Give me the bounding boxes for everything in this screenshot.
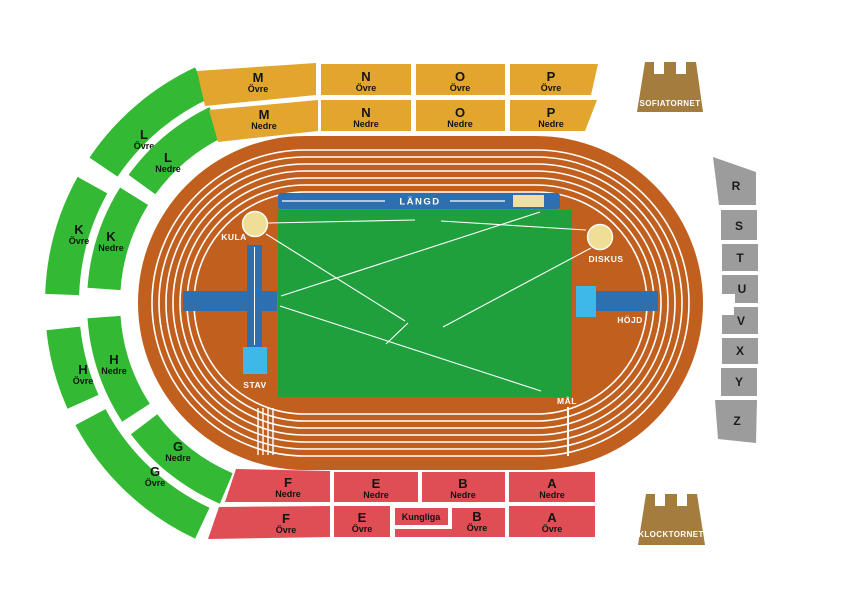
langd-label: LÄNGD xyxy=(399,197,440,208)
section-label-p-ovre: P xyxy=(547,69,556,84)
section-tier-o-nedre: Nedre xyxy=(447,119,473,129)
section-label-e-ovre: E xyxy=(358,510,367,525)
section-tier-h-ovre: Övre xyxy=(73,376,94,386)
section-label-m-nedre: M xyxy=(259,107,270,122)
section-tier-e-nedre: Nedre xyxy=(363,490,389,500)
section-label-g-nedre: G xyxy=(173,439,183,454)
section-label-t: T xyxy=(736,251,744,265)
section-label-f-nedre: F xyxy=(284,475,292,490)
section-tier-l-nedre: Nedre xyxy=(155,164,181,174)
stadium-map-svg: LÄNGD KULA DISKUS HÖJD STAV MÅL LÖvreLNe… xyxy=(0,0,867,592)
section-tier-a-ovre: Övre xyxy=(542,524,563,534)
section-tier-b-ovre: Övre xyxy=(467,523,488,533)
section-tier-n-nedre: Nedre xyxy=(353,119,379,129)
section-tier-g-ovre: Övre xyxy=(145,478,166,488)
section-label-r: R xyxy=(732,179,741,193)
section-tier-m-ovre: Övre xyxy=(248,84,269,94)
section-label-f-ovre: F xyxy=(282,511,290,526)
section-label-z: Z xyxy=(733,414,740,428)
section-label-l-ovre: L xyxy=(140,127,148,142)
klocktornet-label: KLOCKTORNET xyxy=(638,530,704,539)
section-label-p-nedre: P xyxy=(547,105,556,120)
stadium-seating-map: LÄNGD KULA DISKUS HÖJD STAV MÅL LÖvreLNe… xyxy=(0,0,867,592)
section-label-n-nedre: N xyxy=(361,105,370,120)
section-tier-f-ovre: Övre xyxy=(276,525,297,535)
section-label-a-ovre: A xyxy=(547,510,557,525)
mal-label: MÅL xyxy=(557,396,577,406)
high-jump-mat xyxy=(576,286,596,317)
section-tier-o-ovre: Övre xyxy=(450,83,471,93)
section-tier-k-nedre: Nedre xyxy=(98,243,124,253)
section-tier-k-ovre: Övre xyxy=(69,236,90,246)
section-label-v: V xyxy=(737,314,745,328)
infield xyxy=(278,210,572,397)
section-label-k-nedre: K xyxy=(106,229,116,244)
section-tier-e-ovre: Övre xyxy=(352,524,373,534)
section-label-h-ovre: H xyxy=(78,362,87,377)
section-label-y: Y xyxy=(735,375,743,389)
section-label-s: S xyxy=(735,219,743,233)
section-f-ovre[interactable] xyxy=(208,506,330,539)
long-jump-sand-pit xyxy=(513,195,544,207)
section-tier-n-ovre: Övre xyxy=(356,83,377,93)
javelin-runway xyxy=(183,291,277,311)
high-jump-runway xyxy=(596,291,658,311)
section-label-e-nedre: E xyxy=(372,476,381,491)
kula-label: KULA xyxy=(221,232,247,242)
section-tier-b-nedre: Nedre xyxy=(450,490,476,500)
section-tier-f-nedre: Nedre xyxy=(275,489,301,499)
section-tier-p-ovre: Övre xyxy=(541,83,562,93)
section-label-o-nedre: O xyxy=(455,105,465,120)
stav-label: STAV xyxy=(243,380,266,390)
section-label-n-ovre: N xyxy=(361,69,370,84)
sofiatornet-label: SOFIATORNET xyxy=(640,99,701,108)
section-tier-p-nedre: Nedre xyxy=(538,119,564,129)
hojd-label: HÖJD xyxy=(617,315,643,325)
section-label-kungliga: Kungliga xyxy=(402,512,441,522)
pole-vault-mat xyxy=(243,347,267,374)
discus-circle xyxy=(588,225,613,250)
section-tier-h-nedre: Nedre xyxy=(101,366,127,376)
section-label-g-ovre: G xyxy=(150,464,160,479)
section-label-m-ovre: M xyxy=(253,70,264,85)
section-label-b-nedre: B xyxy=(458,476,467,491)
section-tier-g-nedre: Nedre xyxy=(165,453,191,463)
section-label-k-ovre: K xyxy=(74,222,84,237)
section-label-x: X xyxy=(736,344,744,358)
section-tier-m-nedre: Nedre xyxy=(251,121,277,131)
section-label-l-nedre: L xyxy=(164,150,172,165)
section-label-h-nedre: H xyxy=(109,352,118,367)
section-label-a-nedre: A xyxy=(547,476,557,491)
section-label-u: U xyxy=(738,282,747,296)
section-label-o-ovre: O xyxy=(455,69,465,84)
diskus-label: DISKUS xyxy=(588,254,623,264)
section-tier-a-nedre: Nedre xyxy=(539,490,565,500)
section-label-b-ovre: B xyxy=(472,509,481,524)
